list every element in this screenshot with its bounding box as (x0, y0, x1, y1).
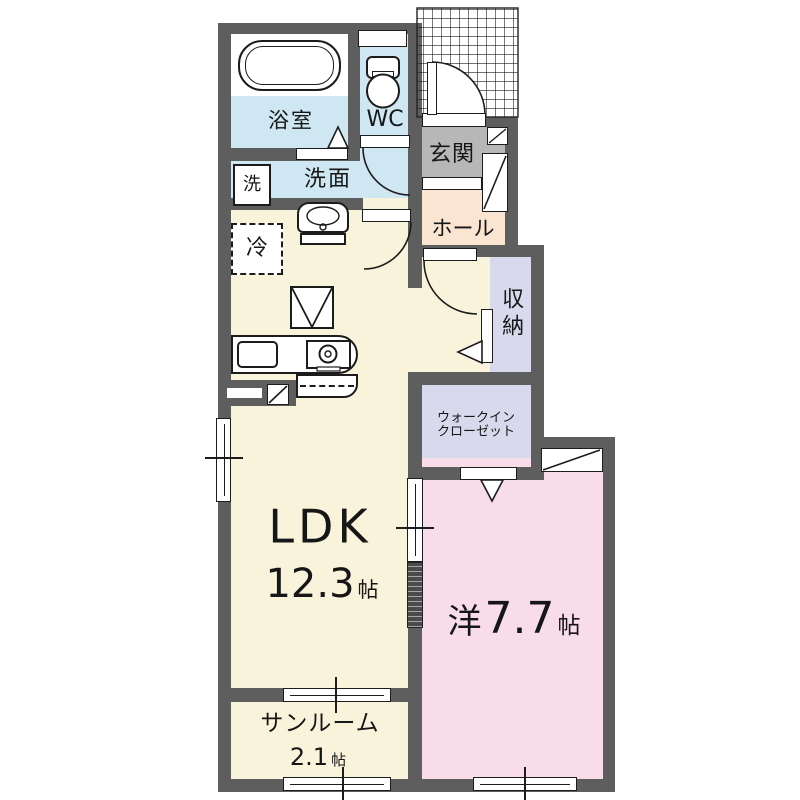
sunroom-size-value: 2.1 (290, 744, 328, 770)
shoe-cabinet-diagonal (484, 156, 506, 209)
sunroom-size-unit: 帖 (331, 752, 346, 769)
corner-box-diagonal (489, 129, 506, 143)
stove-grill (317, 367, 340, 371)
western-room-prefix: 洋 (448, 604, 482, 641)
corner-window-diagonal (543, 450, 600, 470)
floor-plan: 浴室 WC 洗 洗面 冷 玄関 ホール 収納 ウォークイン クローゼット LDK… (0, 0, 800, 800)
stove-burner-icon (320, 346, 337, 363)
wic-door-arrow (481, 480, 503, 501)
ldk-size-unit: 帖 (358, 579, 379, 602)
ldk-size-label: 12.3帖 (265, 562, 378, 606)
sunroom-label: サンルーム (260, 711, 379, 736)
stub-box-diagonal (269, 386, 287, 403)
ldk-size-value: 12.3 (265, 562, 354, 606)
western-room-label: 洋7.7帖 (448, 595, 581, 643)
range-hood-symbol (291, 287, 333, 328)
toilet-label: WC (366, 108, 403, 132)
bathroom-label: 浴室 (268, 109, 314, 132)
storage-label: 収納 (498, 287, 522, 341)
washroom-label: 洗面 (304, 168, 352, 192)
western-room-unit: 帖 (557, 614, 580, 639)
entrance-label: 玄関 (429, 143, 475, 167)
hall-label: ホール (432, 217, 495, 240)
stove-burner-center (325, 351, 331, 357)
wic-label: ウォークイン クローゼット (437, 412, 515, 441)
toilet-bowl-icon (367, 75, 399, 108)
western-room-size: 7.7 (485, 595, 555, 643)
laundry-label: 洗 (243, 175, 261, 195)
storage-door-arrow (458, 341, 482, 363)
wic-label-line2: クローゼット (437, 426, 515, 440)
bath-door-marker (328, 127, 348, 148)
sunroom-size-label: 2.1帖 (290, 744, 346, 770)
ldk-label: LDK (268, 502, 371, 553)
wic-label-line1: ウォークイン (437, 412, 515, 426)
refrigerator-label: 冷 (246, 237, 268, 261)
vanity-basin-icon (307, 207, 339, 225)
